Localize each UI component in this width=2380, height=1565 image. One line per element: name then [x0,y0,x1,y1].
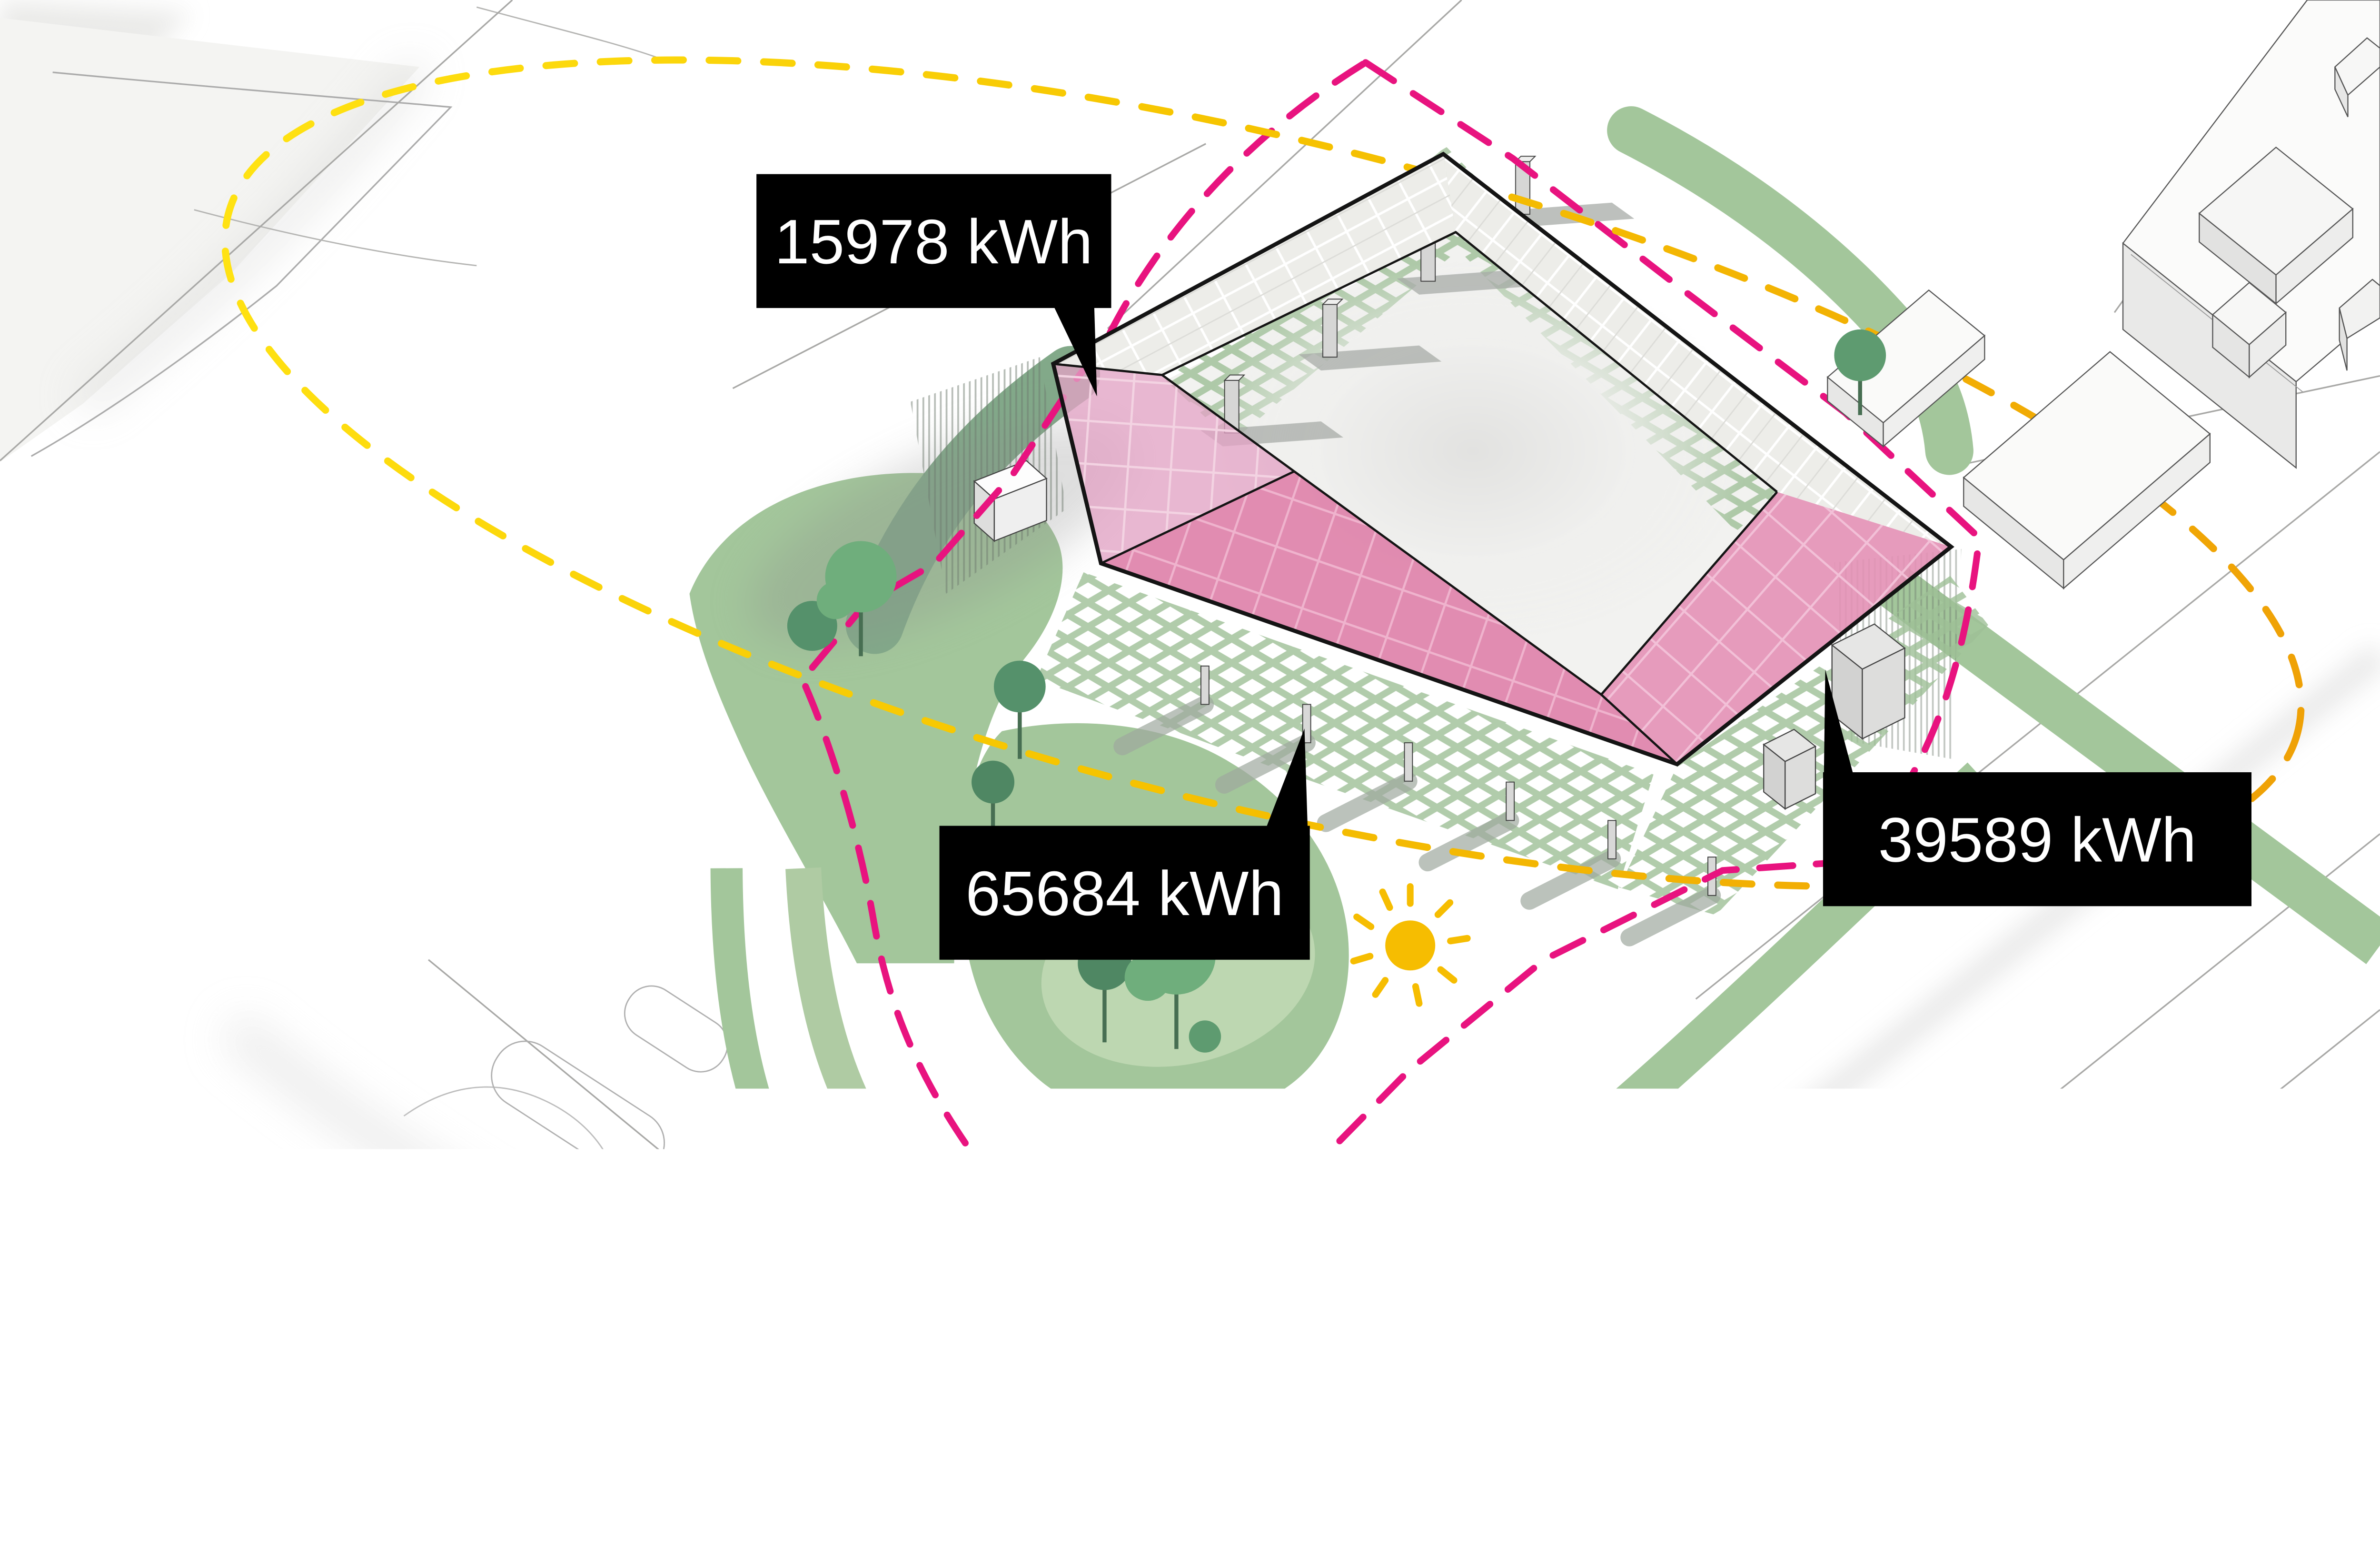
callout-left-label: 15978 kWh [774,207,1093,277]
caption-line-1: Quick scan of total [74,1142,438,1190]
callout-front-label: 65684 kWh [965,858,1284,929]
site-diagram-stage: 15978 kWh 65684 kWh 39589 kWh Quick scan… [0,0,2380,1467]
site-plan-canvas: 15978 kWh 65684 kWh 39589 kWh Quick scan… [0,0,2380,1467]
gray-box-a [1832,624,1905,739]
caption-line-3: generation potential [74,1265,463,1313]
gray-box-b [1764,729,1815,809]
caption-line-5: integrated into glass [74,1387,471,1435]
callout-right-label: 39589 kWh [1878,805,2197,875]
caption-line-4: based on PV cells [74,1326,428,1374]
caption-line-2: annual energy [74,1203,354,1251]
caption: Quick scan of total annual energy genera… [74,1142,471,1435]
